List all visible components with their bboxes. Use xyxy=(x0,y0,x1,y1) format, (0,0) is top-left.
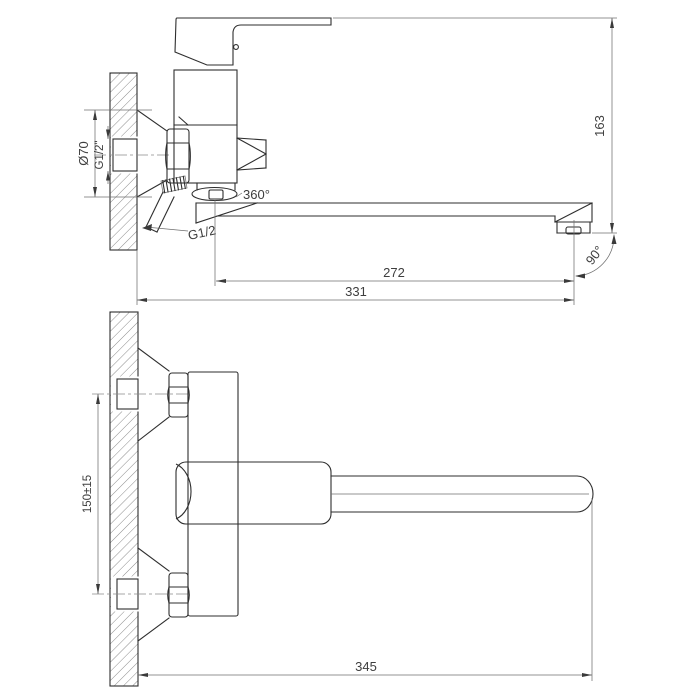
dim-inlet-centers: 150±15 xyxy=(82,475,94,513)
spout-front xyxy=(331,476,593,512)
handle-screw-cover xyxy=(234,45,239,50)
body-plate-front xyxy=(188,372,238,616)
side-view: Ø70 G1/2" 360° G1/2 163 90° xyxy=(76,18,617,305)
valve-body-side xyxy=(174,70,237,183)
dim-spout-reach: 272 xyxy=(383,265,405,280)
body-dome-front xyxy=(176,464,191,519)
spout-side xyxy=(196,203,592,234)
dimensions-front-view: 150±15 345 xyxy=(82,394,592,681)
dimensions-side-view: Ø70 G1/2" 360° G1/2 163 90° xyxy=(76,18,617,305)
wall-section-front xyxy=(92,312,190,686)
escutcheon-cone-side xyxy=(137,110,167,197)
dim-inlet-thread: G1/2" xyxy=(94,140,106,169)
faucet-technical-drawing: Ø70 G1/2" 360° G1/2 163 90° xyxy=(0,0,700,700)
drawing-page: Ø70 G1/2" 360° G1/2 163 90° xyxy=(0,0,700,700)
side-outlet-cone xyxy=(237,138,266,170)
dim-overall-length: 345 xyxy=(355,659,377,674)
swivel-nut-side xyxy=(192,183,237,201)
dim-shower-thread: G1/2 xyxy=(187,222,218,243)
escutcheon-cones-front xyxy=(138,348,169,641)
dim-overall-reach: 331 xyxy=(345,284,367,299)
dim-escutcheon-diameter: Ø70 xyxy=(76,141,91,166)
hex-nut-side xyxy=(166,129,191,183)
mixer-body-front xyxy=(176,462,331,524)
dim-overall-height: 163 xyxy=(592,115,607,137)
dim-swivel-rotation: 360° xyxy=(243,187,270,202)
front-view: 150±15 345 xyxy=(82,312,593,686)
handle-side xyxy=(175,18,331,65)
hex-nut-front-top xyxy=(168,373,189,417)
hex-nut-front-bottom xyxy=(168,573,189,617)
aerator-side xyxy=(557,222,590,234)
shower-outlet-thread xyxy=(146,176,187,232)
